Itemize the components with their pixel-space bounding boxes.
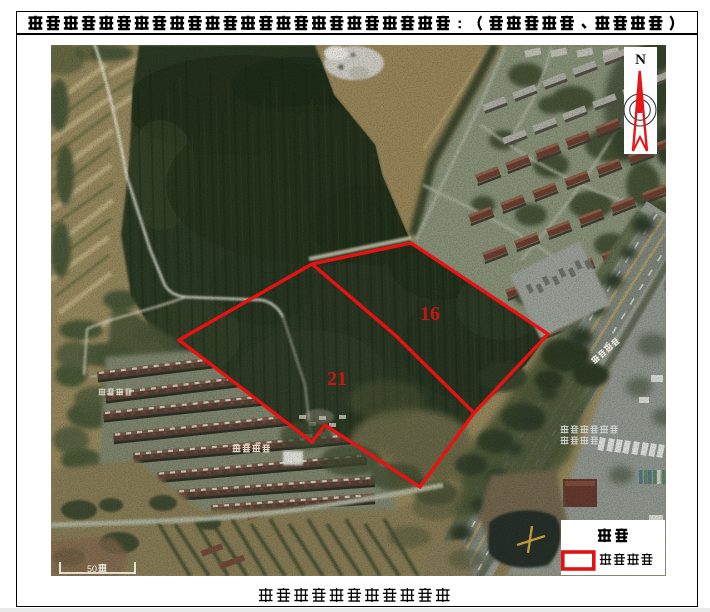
svg-text:21: 21 <box>327 368 347 390</box>
svg-text:16: 16 <box>420 303 440 325</box>
svg-text:N: N <box>635 52 646 68</box>
svg-text:50: 50 <box>87 564 97 574</box>
